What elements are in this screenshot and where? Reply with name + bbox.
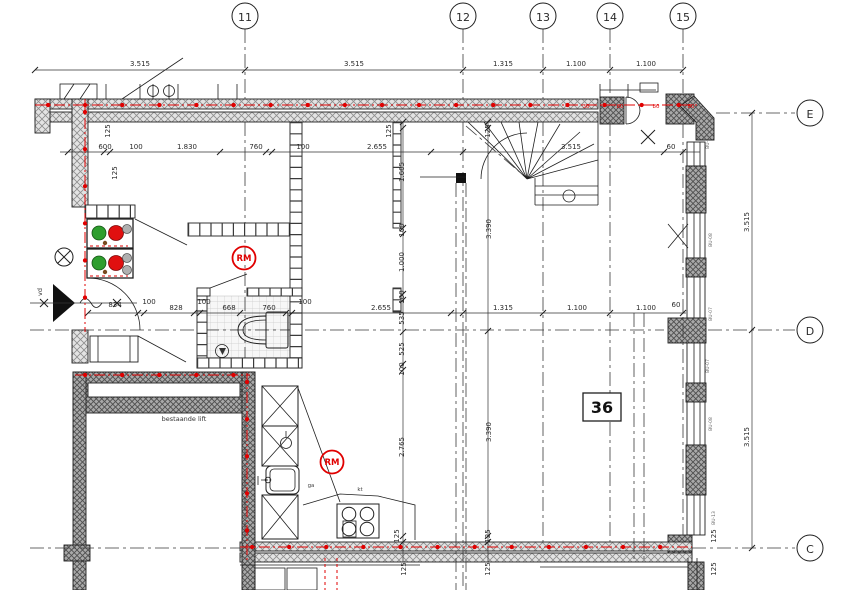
- dim-label: 3.515: [344, 60, 364, 68]
- green-indicator: [92, 256, 106, 270]
- lower-floor-lines: [240, 558, 697, 590]
- red-indicator: [109, 226, 124, 241]
- window-tag: BU-13: [711, 511, 717, 525]
- door-leaf-bathroom: [210, 274, 247, 288]
- dim-label: 100: [398, 223, 406, 236]
- dim-label: 3.515: [561, 143, 581, 151]
- dim-label: 125: [385, 124, 393, 137]
- pier-1: [686, 166, 706, 213]
- floor-plan-canvas: 11 12 13 14 15 E D C 3.515 3.515 1.315 1…: [0, 0, 846, 590]
- dim-label: 834: [108, 301, 122, 309]
- dim-label: 600: [98, 143, 111, 151]
- dim-label: 2.655: [371, 304, 391, 312]
- dim-label: 125: [710, 562, 718, 575]
- grid-label: 12: [456, 11, 470, 24]
- dim-label: 668: [222, 304, 235, 312]
- dim-label: 1.315: [493, 304, 513, 312]
- dim-label: 1.100: [566, 60, 586, 68]
- pier-3: [686, 383, 706, 402]
- top-wall-inner-band: [35, 112, 598, 122]
- window-x-mark: [668, 224, 688, 248]
- ga-label: ga: [308, 483, 315, 489]
- window-5: [687, 402, 705, 445]
- dim-label: 1.100: [567, 304, 587, 312]
- window-tag: BU-13: [705, 135, 711, 149]
- small-dot: [103, 270, 107, 274]
- kt-label: kt: [357, 487, 363, 493]
- fire-rating-label: 30: [583, 104, 590, 110]
- grid-label: 15: [676, 11, 690, 24]
- dim-label: 3.390: [485, 422, 493, 442]
- dim-label: 125: [104, 124, 112, 137]
- grid-label: D: [806, 325, 814, 338]
- shaft-door-slot: [88, 383, 240, 397]
- dim-label: 828: [169, 304, 182, 312]
- fire-rating-label: 80: [688, 104, 695, 110]
- window-3: [687, 277, 705, 318]
- dim-label: 100: [142, 298, 155, 306]
- dim-label: 100: [296, 143, 309, 151]
- dim-label: 2.765: [398, 437, 406, 457]
- burner: [360, 507, 374, 521]
- stair-newel: [563, 190, 575, 202]
- shaft-right-wall: [242, 372, 255, 590]
- grid-label: 14: [603, 11, 617, 24]
- dim-label: 125: [111, 166, 119, 179]
- dim-label: 60: [672, 301, 681, 309]
- dim-label: 3.390: [485, 219, 493, 239]
- worktop-diagonal: [298, 388, 340, 502]
- gray-indicator: [123, 254, 132, 263]
- top-wall-outer-band: [35, 99, 598, 109]
- dim-label: 100: [197, 298, 210, 306]
- grid-label: 13: [536, 11, 550, 24]
- window-2: [687, 213, 705, 258]
- stair-up-line: [466, 126, 523, 175]
- dim-label: 760: [262, 304, 275, 312]
- fire-rating-lines: [35, 99, 700, 560]
- meter-boxes: [87, 219, 133, 278]
- dimension-labels: 3.515 3.515 1.315 1.100 1.100 3.515 3.51…: [98, 60, 751, 576]
- gray-indicator: [123, 225, 132, 234]
- floor-plan-page: 11 12 13 14 15 E D C 3.515 3.515 1.315 1…: [0, 0, 846, 590]
- dim-label: 1.000: [398, 252, 406, 272]
- fire-rating-label: 80: [653, 104, 660, 110]
- window-tag: BU-08: [708, 417, 714, 431]
- column-top-1: [600, 97, 624, 124]
- dim-label: 535: [398, 311, 406, 324]
- pier-4: [686, 445, 706, 495]
- window-tag: BU-07: [708, 307, 714, 321]
- window-6: [687, 495, 705, 535]
- dim-label: 100: [398, 362, 406, 375]
- burner: [342, 507, 356, 521]
- red-indicator: [109, 256, 124, 271]
- dim-label: 1.100: [636, 304, 656, 312]
- dim-label: 1.665: [398, 162, 406, 182]
- grid-label: C: [806, 543, 814, 556]
- dim-label: 125: [710, 529, 718, 542]
- dim-label: 125: [393, 529, 401, 542]
- left-wall-stub-d: [72, 330, 88, 363]
- vd-label: vd: [36, 288, 44, 296]
- window-1: [687, 142, 705, 166]
- dim-label: 2.655: [367, 143, 387, 151]
- window-tag: BU-07: [705, 359, 711, 373]
- x-mark-stair: [641, 130, 655, 144]
- burner: [360, 522, 374, 536]
- door-leaf-hall: [135, 219, 187, 245]
- left-wall-upper: [72, 99, 88, 207]
- dim-label: 125: [400, 562, 408, 575]
- dim-label: 125: [484, 529, 492, 542]
- dim-label: 100: [298, 298, 311, 306]
- grid-node-marker: [456, 173, 466, 183]
- lobby-door-frame: [90, 336, 138, 362]
- gray-indicator: [123, 266, 132, 275]
- elevator-shaft: [64, 372, 255, 590]
- window-tag: BU-08: [708, 233, 714, 247]
- fire-rating-label: 80: [617, 104, 624, 110]
- dim-label: 3.515: [743, 212, 751, 232]
- dim-label: 760: [249, 143, 262, 151]
- dim-label: 125: [484, 562, 492, 575]
- dim-label: 60: [667, 143, 676, 151]
- dim-label: 1.315: [493, 60, 513, 68]
- dim-label: 125: [484, 124, 492, 137]
- corner-pier-d: [668, 318, 706, 343]
- pier-2: [686, 258, 706, 277]
- rm-marker-label: RM: [236, 254, 251, 264]
- door-leaf-lobby: [138, 336, 186, 362]
- dim-label: 3.515: [743, 427, 751, 447]
- lift-label: bestaande lift: [162, 415, 207, 423]
- grid-bubbles: 11 12 13 14 15 E D C: [232, 3, 823, 561]
- dim-label: 1.830: [177, 143, 197, 151]
- dim-label: 100: [129, 143, 142, 151]
- burner: [342, 522, 356, 536]
- room-number: 36: [591, 398, 613, 417]
- small-dot: [103, 241, 107, 245]
- pier-below-c: [688, 562, 704, 590]
- green-indicator: [92, 226, 106, 240]
- shaft-foot-block: [64, 545, 90, 561]
- dim-label: 3.515: [130, 60, 150, 68]
- rm-marker-label: RM: [324, 458, 339, 468]
- grid-label: E: [807, 108, 814, 121]
- dim-label: 1.100: [636, 60, 656, 68]
- dim-label: 525: [398, 342, 406, 355]
- grid-label: 11: [238, 11, 252, 24]
- double-door-stair: [626, 97, 640, 124]
- window-4: [687, 343, 705, 383]
- dim-label: 100: [398, 290, 406, 303]
